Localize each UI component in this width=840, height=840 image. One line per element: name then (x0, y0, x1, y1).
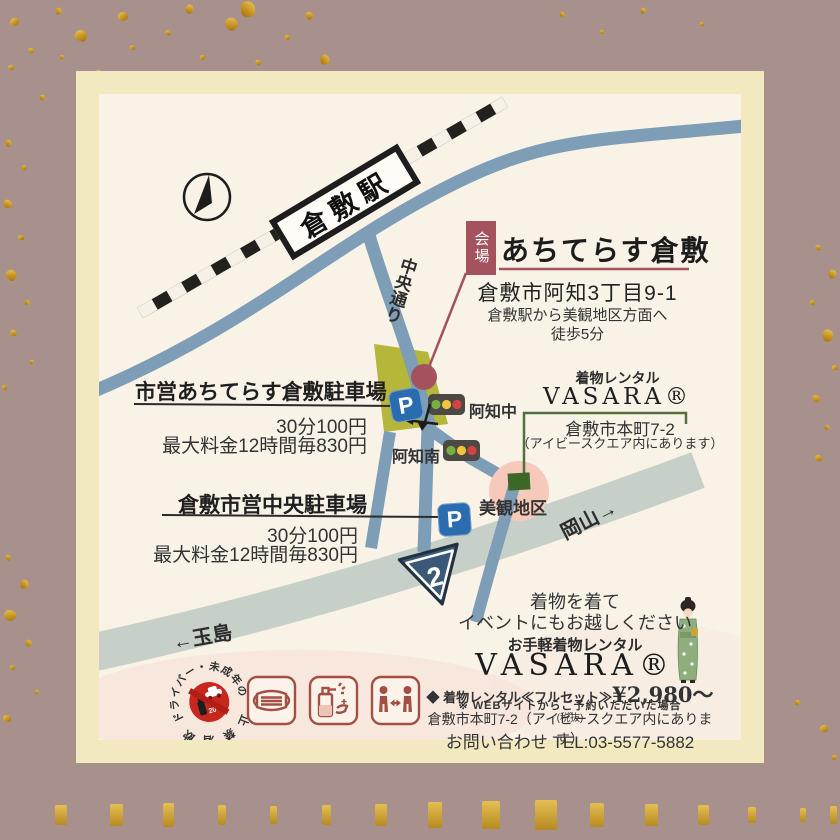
parking2-letter: P (446, 505, 463, 533)
parking1-letter: P (396, 390, 416, 419)
venue-address: 倉敷市阿知3丁目9-1 (455, 277, 700, 307)
signal-label-minami: 阿知南 (392, 443, 440, 467)
bikan-label: 美観地区 (479, 494, 547, 519)
parking2-name: 倉敷市営中央駐車場 (178, 489, 367, 519)
venue-access-line2: 徒歩5分 (450, 323, 705, 344)
rental-note: （アイビースクエア内にあります） (513, 433, 727, 452)
parking1-name: 市営あちてらす倉敷駐車場 (135, 376, 387, 406)
promo-brand: VASARA® (450, 648, 700, 683)
venue-marker (411, 364, 437, 390)
sanitizer-icon (310, 677, 357, 724)
promo-contact: お問い合わせ TEL:03-5577-5882 (430, 728, 710, 753)
traffic-light-minami-icon (443, 440, 480, 461)
parking1-max: 最大料金12時間毎830円 (135, 431, 367, 458)
bikan-marker (508, 472, 531, 490)
svg-text:酒: 酒 (203, 733, 214, 746)
social-distance-icon (372, 677, 419, 724)
promo-line2: イベントにもお越しください (452, 609, 698, 635)
venue-access-line1: 倉敷駅から美観地区方面へ (450, 304, 705, 325)
venue-tag-badge: 会場 (466, 221, 496, 275)
mask-icon (248, 677, 295, 724)
parking2-max: 最大料金12時間毎830円 (125, 540, 358, 567)
venue-tag-label: 会場 (471, 231, 492, 265)
side-road-left (371, 432, 390, 548)
parking2-sign: P (437, 502, 472, 537)
parking1-sign: P (387, 386, 424, 423)
traffic-light-naka-icon (428, 394, 465, 415)
flyer-access-map: { "map": { "station_label": "倉敷駅", "stre… (0, 0, 840, 840)
covid-icons (248, 677, 419, 724)
venue-name: あちてらす倉敷 (501, 229, 710, 269)
compass-north-icon (184, 174, 230, 220)
rental-name: VASARA® (525, 384, 710, 410)
signal-label-naka: 阿知中 (469, 398, 517, 422)
